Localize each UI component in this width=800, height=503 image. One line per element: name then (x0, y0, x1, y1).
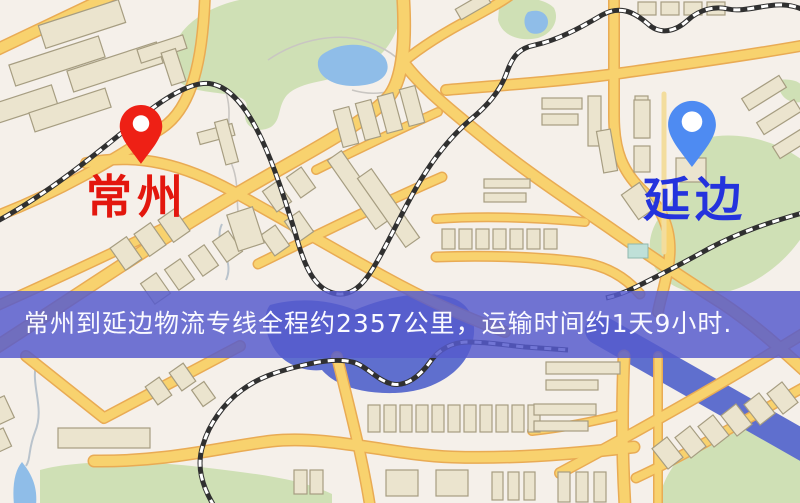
map-canvas[interactable] (0, 0, 800, 503)
origin-label: 常州 (52, 174, 222, 220)
destination-pin-hole (682, 111, 703, 132)
origin-pin-shape (120, 105, 163, 164)
destination-pin-shape (668, 101, 716, 167)
route-info-banner: 常州到延边物流专线全程约2357公里，运输时间约1天9小时. (0, 291, 800, 358)
pool-building (628, 244, 648, 258)
route-info-text: 常州到延边物流专线全程约2357公里，运输时间约1天9小时. (0, 304, 732, 346)
origin-pin[interactable] (119, 101, 163, 168)
origin-pin-hole (133, 115, 150, 132)
map-screenshot: 常州 延边 常州到延边物流专线全程约2357公里，运输时间约1天9小时. (0, 0, 800, 503)
destination-pin[interactable] (667, 100, 717, 168)
destination-label: 延边 (610, 177, 780, 224)
